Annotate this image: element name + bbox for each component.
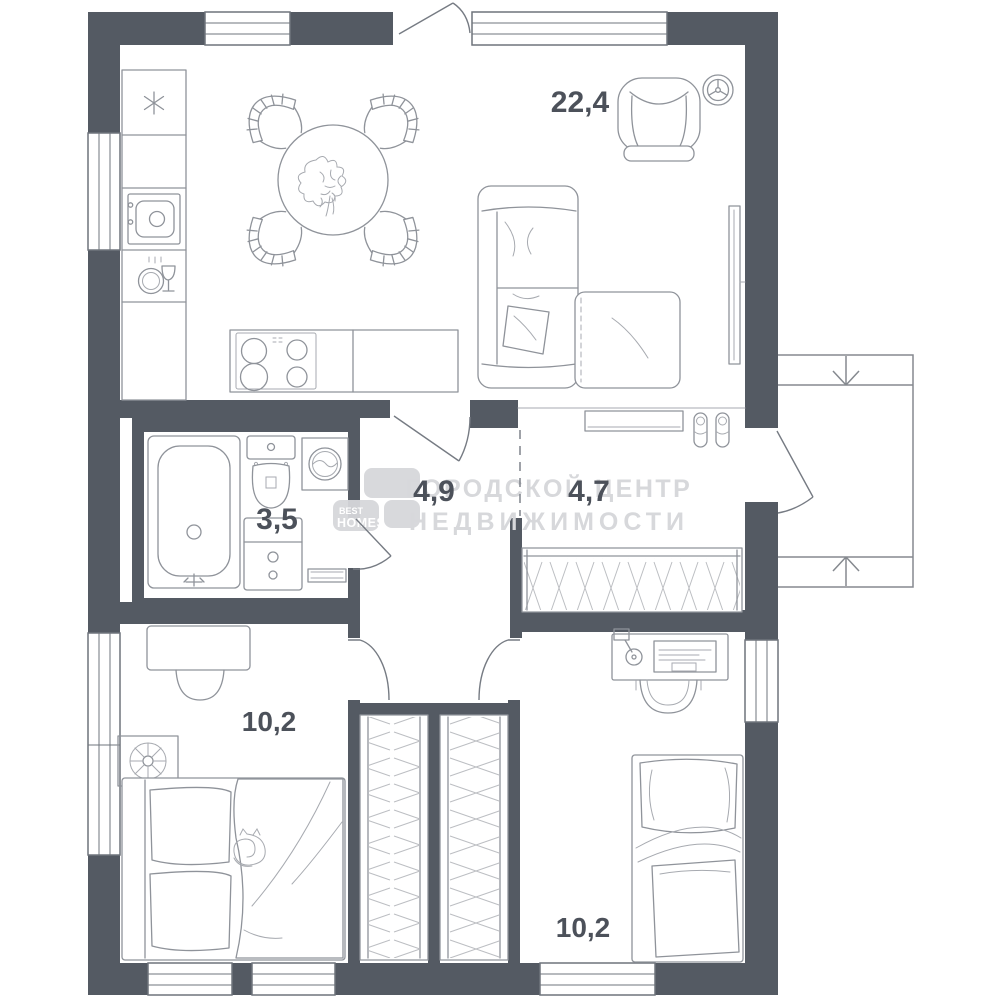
table-top <box>278 125 388 235</box>
pillow <box>150 871 231 950</box>
sofa-icon <box>478 186 578 388</box>
logo-text-homes: HOMES <box>337 516 385 530</box>
pillow <box>150 787 231 864</box>
bed-icon <box>632 755 743 962</box>
room-label-bedroom-left: 10,2 <box>242 706 297 737</box>
room-label-bedroom-right: 10,2 <box>556 912 611 943</box>
window-kitchen-top <box>205 12 290 45</box>
pillow <box>640 759 737 833</box>
washing-machine-icon <box>302 438 348 490</box>
floor-plan-page: BEST HOMES ГОРОДСКОЙ ЦЕНТР НЕДВИЖИМОСТИ … <box>0 0 1000 1000</box>
blanket <box>234 779 343 958</box>
wardrobe-icon <box>522 548 742 612</box>
floor-plan-svg: BEST HOMES ГОРОДСКОЙ ЦЕНТР НЕДВИЖИМОСТИ … <box>0 0 1000 1000</box>
window-bedroom-left-bottom-2 <box>252 963 335 995</box>
window-bedroom-left-side <box>88 633 120 855</box>
window-kitchen-left <box>88 133 120 250</box>
room-label-hallway: 4,9 <box>413 475 455 508</box>
room-label-living-kitchen: 22,4 <box>551 86 610 119</box>
bathtub-icon <box>148 436 240 588</box>
window-living-top <box>472 12 667 45</box>
watermark-line-2: НЕДВИЖИМОСТИ <box>409 508 689 536</box>
ottoman <box>575 292 680 388</box>
logo-text-best: BEST <box>339 506 364 516</box>
armchair-icon <box>618 78 700 161</box>
blanket <box>652 860 739 957</box>
watermark: BEST HOMES ГОРОДСКОЙ ЦЕНТР НЕДВИЖИМОСТИ <box>333 468 692 536</box>
window-bedroom-left-bottom-1 <box>148 963 232 995</box>
closet-right <box>440 715 508 960</box>
sofa-pillow <box>503 306 549 354</box>
closet-left <box>360 715 428 960</box>
bedroom-right-area <box>612 629 743 962</box>
bed-icon <box>122 778 345 960</box>
room-label-entry-hall: 4,7 <box>568 475 610 508</box>
window-bedroom-right-side <box>745 640 778 722</box>
window-bedroom-right-bottom <box>540 963 655 995</box>
room-label-bathroom: 3,5 <box>256 503 298 536</box>
